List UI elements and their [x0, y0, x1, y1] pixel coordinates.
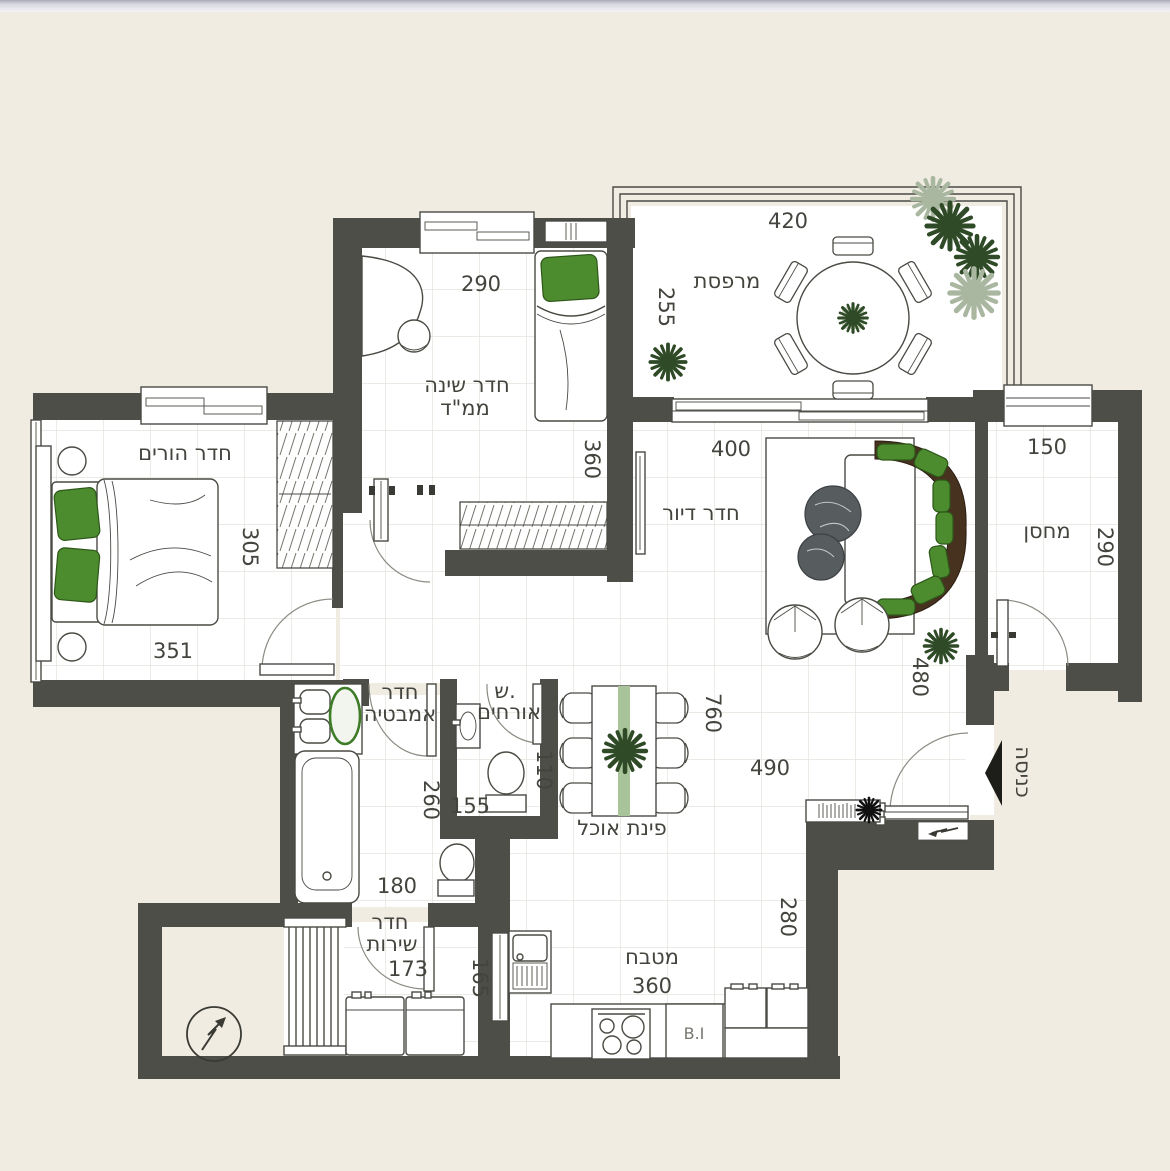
electrical-niche: [918, 822, 968, 840]
entry-console: [806, 798, 881, 822]
bathtub: [295, 751, 359, 903]
single-bed: [535, 251, 607, 421]
living-depth-dim: 480: [908, 657, 932, 697]
guest-wc-width-dim: 155: [450, 794, 490, 818]
built-in-label: B.I: [684, 1024, 705, 1043]
storage-window: [1004, 385, 1092, 426]
living-sideboard: [636, 452, 645, 554]
safe-bedroom-vent-box: [545, 221, 607, 242]
entry-plant-icon: [857, 798, 881, 822]
safe-bedroom-depth-dim: 360: [580, 439, 604, 479]
bedside-lamp: [58, 447, 86, 475]
vanity-sinks: [292, 684, 362, 754]
bathroom-label-2: אמבטיה: [364, 702, 436, 726]
living-room-label: חדר דיור: [662, 501, 739, 525]
table-plant-icon: [839, 304, 868, 333]
balcony-depth-dim: 255: [654, 287, 678, 327]
toilet: [438, 844, 474, 896]
armchair: [768, 605, 822, 659]
hall-depth-dim: 760: [701, 693, 725, 733]
safe-bedroom-window: [420, 212, 534, 253]
dining-plant-icon: [604, 730, 646, 772]
service-depth-dim: 165: [468, 958, 492, 998]
double-bed: [52, 479, 218, 625]
storage-depth-dim: 290: [1093, 527, 1117, 567]
master-bedroom-label: חדר הורים: [138, 441, 232, 465]
bathroom-label-1: חדר: [381, 680, 418, 704]
master-width-dim: 351: [153, 639, 193, 663]
dining-label: פינת אוכל: [577, 816, 667, 840]
window-top-bar: [0, 0, 1170, 12]
entrance-label: כניסה: [1011, 746, 1035, 798]
kitchen-pocket-door: [492, 933, 508, 1021]
safe-bedroom-closet: [460, 502, 607, 549]
safe-bedroom-label-1: חדר שינה: [424, 373, 509, 397]
storage-width-dim: 150: [1027, 435, 1067, 459]
service-room-label-2: שירות: [367, 932, 418, 956]
safe-bedroom-width-dim: 290: [461, 272, 501, 296]
balcony-label: מרפסת: [694, 269, 761, 293]
storage-label: מחסן: [1023, 519, 1070, 543]
cooktop: [592, 1009, 650, 1059]
master-depth-dim: 305: [238, 527, 262, 567]
bathroom-width-dim: 180: [377, 874, 417, 898]
safe-bedroom-label-2: ממ"ד: [440, 396, 490, 420]
guest-wc-label-2: אורחים: [477, 700, 541, 724]
service-room-label-1: חדר: [371, 910, 408, 934]
balcony-plant-icon: [650, 344, 685, 379]
balcony-width-dim: 420: [768, 209, 808, 233]
floor-plan-page: מרפסת 420 255 חדר שינה ממ"ד 290 360 חדר …: [0, 0, 1170, 1171]
bathroom-depth-dim: 260: [419, 780, 443, 820]
kitchen-width-dim: 360: [632, 974, 672, 998]
floor-plan-canvas: מרפסת 420 255 חדר שינה ממ"ד 290 360 חדר …: [0, 0, 1170, 1171]
wc-toilet: [486, 752, 526, 812]
armchair: [835, 598, 889, 652]
hall-width-dim: 490: [750, 756, 790, 780]
bedside-lamp: [58, 633, 86, 661]
master-wardrobe: [277, 421, 333, 568]
kitchen-depth-dim: 280: [776, 897, 800, 937]
wc-sink: [452, 704, 480, 748]
guest-wc-depth-dim: 110: [532, 750, 556, 790]
kitchen-units: [725, 984, 808, 1058]
dining-furniture: [560, 686, 688, 816]
master-bedroom-window: [141, 387, 267, 424]
living-room-sliding-door: [672, 399, 928, 422]
kitchen-sink: [509, 931, 551, 993]
living-width-dim: 400: [711, 437, 751, 461]
service-yard-floor: [162, 927, 284, 1057]
service-width-dim: 173: [388, 957, 428, 981]
kitchen-label: מטבח: [625, 945, 679, 969]
headboard: [36, 446, 51, 661]
